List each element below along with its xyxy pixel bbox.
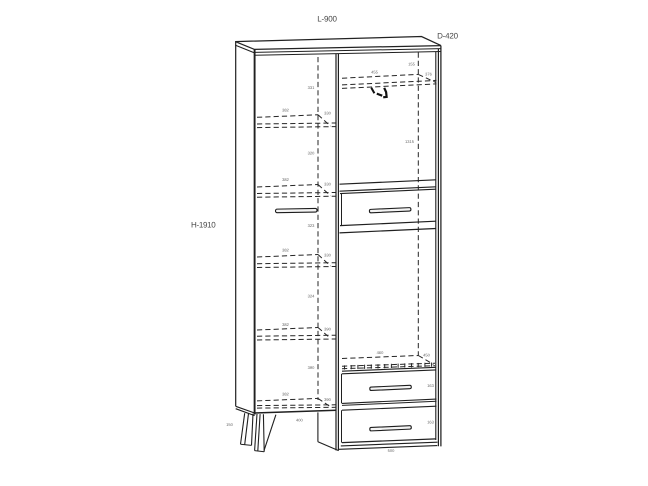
svg-text:L-900: L-900 (317, 15, 337, 24)
svg-text:155: 155 (408, 62, 415, 67)
svg-text:450: 450 (423, 353, 430, 358)
svg-text:460: 460 (377, 350, 384, 355)
svg-text:330: 330 (324, 111, 331, 116)
svg-text:330: 330 (324, 182, 331, 187)
svg-text:400: 400 (296, 418, 303, 423)
svg-text:382: 382 (282, 177, 289, 182)
svg-text:382: 382 (282, 248, 289, 253)
svg-text:330: 330 (324, 253, 331, 258)
svg-text:320: 320 (308, 151, 315, 156)
svg-text:382: 382 (282, 392, 289, 397)
svg-text:390: 390 (324, 397, 331, 402)
svg-text:D-420: D-420 (437, 32, 459, 41)
svg-text:455: 455 (371, 70, 378, 75)
svg-text:382: 382 (282, 322, 289, 327)
svg-text:H-1910: H-1910 (191, 220, 216, 229)
svg-text:1315: 1315 (405, 139, 415, 144)
svg-text:323: 323 (308, 223, 315, 228)
svg-text:382: 382 (282, 108, 289, 113)
svg-text:390: 390 (324, 326, 331, 331)
svg-text:150: 150 (226, 422, 233, 427)
svg-text:331: 331 (308, 85, 315, 90)
svg-text:376: 376 (425, 72, 432, 77)
svg-text:163: 163 (427, 383, 434, 388)
svg-text:500: 500 (388, 448, 395, 453)
svg-text:390: 390 (308, 365, 315, 370)
svg-text:324: 324 (308, 294, 315, 299)
svg-text:163: 163 (427, 420, 434, 425)
